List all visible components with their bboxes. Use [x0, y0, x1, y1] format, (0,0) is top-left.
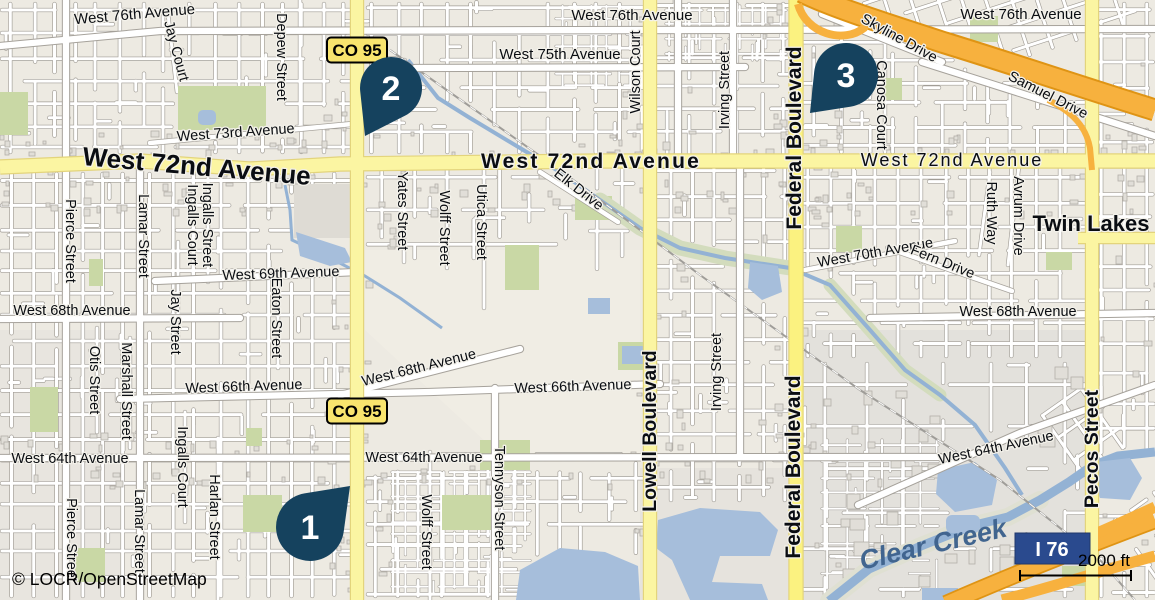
svg-text:Ruth Way: Ruth Way — [983, 181, 999, 245]
svg-text:Irving Street: Irving Street — [717, 51, 733, 129]
svg-text:Harlan Street: Harlan Street — [206, 474, 222, 559]
svg-text:Wilson Court: Wilson Court — [628, 31, 644, 114]
svg-text:Federal Boulevard: Federal Boulevard — [782, 375, 805, 558]
svg-text:West 76th Avenue: West 76th Avenue — [571, 7, 692, 24]
svg-text:Utica Street: Utica Street — [473, 184, 489, 260]
svg-text:West 68th Avenue: West 68th Avenue — [959, 304, 1076, 320]
svg-text:Pierce Street: Pierce Street — [62, 199, 78, 283]
svg-text:2000 ft: 2000 ft — [1078, 551, 1130, 570]
svg-text:West 72nd Avenue: West 72nd Avenue — [481, 150, 701, 173]
svg-text:Lamar Street: Lamar Street — [131, 489, 147, 573]
svg-text:West 64th Avenue: West 64th Avenue — [11, 451, 128, 467]
svg-text:Tennyson Street: Tennyson Street — [491, 446, 507, 551]
svg-text:Yates Street: Yates Street — [394, 172, 410, 251]
svg-text:CO 95: CO 95 — [332, 402, 381, 421]
svg-text:Eaton Street: Eaton Street — [268, 278, 284, 359]
svg-text:West 68th Avenue: West 68th Avenue — [13, 303, 130, 319]
svg-text:Federal Boulevard: Federal Boulevard — [783, 46, 806, 229]
svg-text:West 72nd Avenue: West 72nd Avenue — [861, 150, 1043, 170]
svg-text:I 76: I 76 — [1035, 539, 1068, 561]
svg-text:© LOCR/OpenStreetMap: © LOCR/OpenStreetMap — [12, 569, 207, 589]
svg-text:Wolff Street: Wolff Street — [436, 190, 452, 265]
svg-text:Pecos Street: Pecos Street — [1081, 389, 1103, 508]
svg-text:Otis Street: Otis Street — [86, 346, 102, 415]
svg-text:Wolff Street: Wolff Street — [418, 494, 434, 569]
svg-text:Depew Street: Depew Street — [273, 13, 289, 101]
svg-text:Jay Street: Jay Street — [167, 289, 183, 354]
svg-text:Ingalls Court: Ingalls Court — [174, 426, 190, 507]
svg-text:West 75th Avenue: West 75th Avenue — [499, 46, 620, 63]
svg-text:2: 2 — [382, 70, 401, 108]
svg-text:3: 3 — [837, 57, 856, 95]
svg-text:CO 95: CO 95 — [332, 41, 381, 60]
svg-text:Ingalls Court: Ingalls Court — [184, 184, 200, 265]
svg-text:Lamar Street: Lamar Street — [135, 194, 151, 278]
svg-text:Ingalls Street: Ingalls Street — [199, 183, 215, 268]
svg-text:Twin Lakes: Twin Lakes — [1033, 211, 1150, 236]
svg-text:West 76th Avenue: West 76th Avenue — [960, 6, 1081, 23]
svg-text:1: 1 — [301, 509, 320, 547]
svg-text:Lowell Boulevard: Lowell Boulevard — [639, 350, 661, 511]
svg-text:West 64th Avenue: West 64th Avenue — [365, 450, 482, 466]
svg-text:Irving Street: Irving Street — [709, 333, 725, 411]
svg-text:Avrum Drive: Avrum Drive — [1010, 176, 1026, 256]
svg-text:Marshall Street: Marshall Street — [118, 342, 134, 440]
